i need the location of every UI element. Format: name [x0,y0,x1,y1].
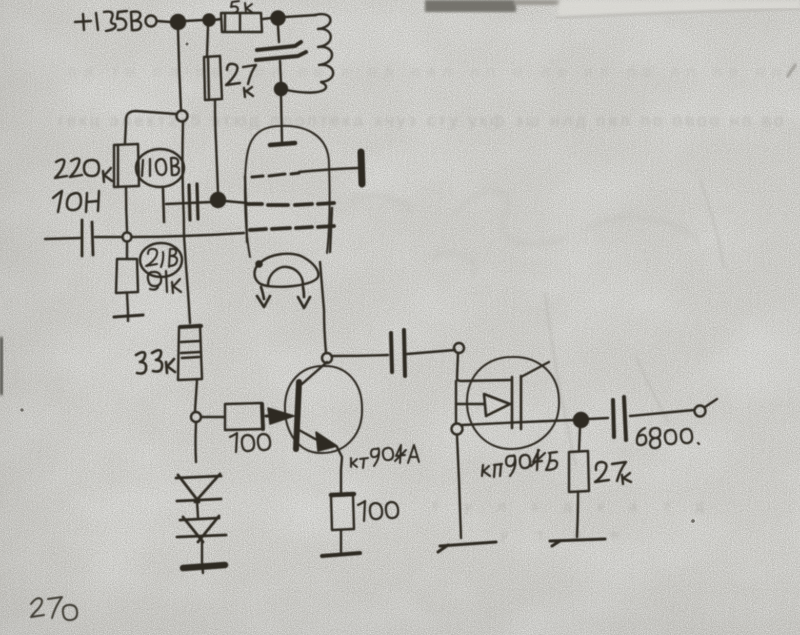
svg-text:пл тп пл пвл пл пв п пл пв: пл тп пл пвл пл пв п пл пвл пл п лв пл п… [68,64,788,81]
svg-text:т у л з д к а т д: т у л з д к а т д [432,498,715,514]
